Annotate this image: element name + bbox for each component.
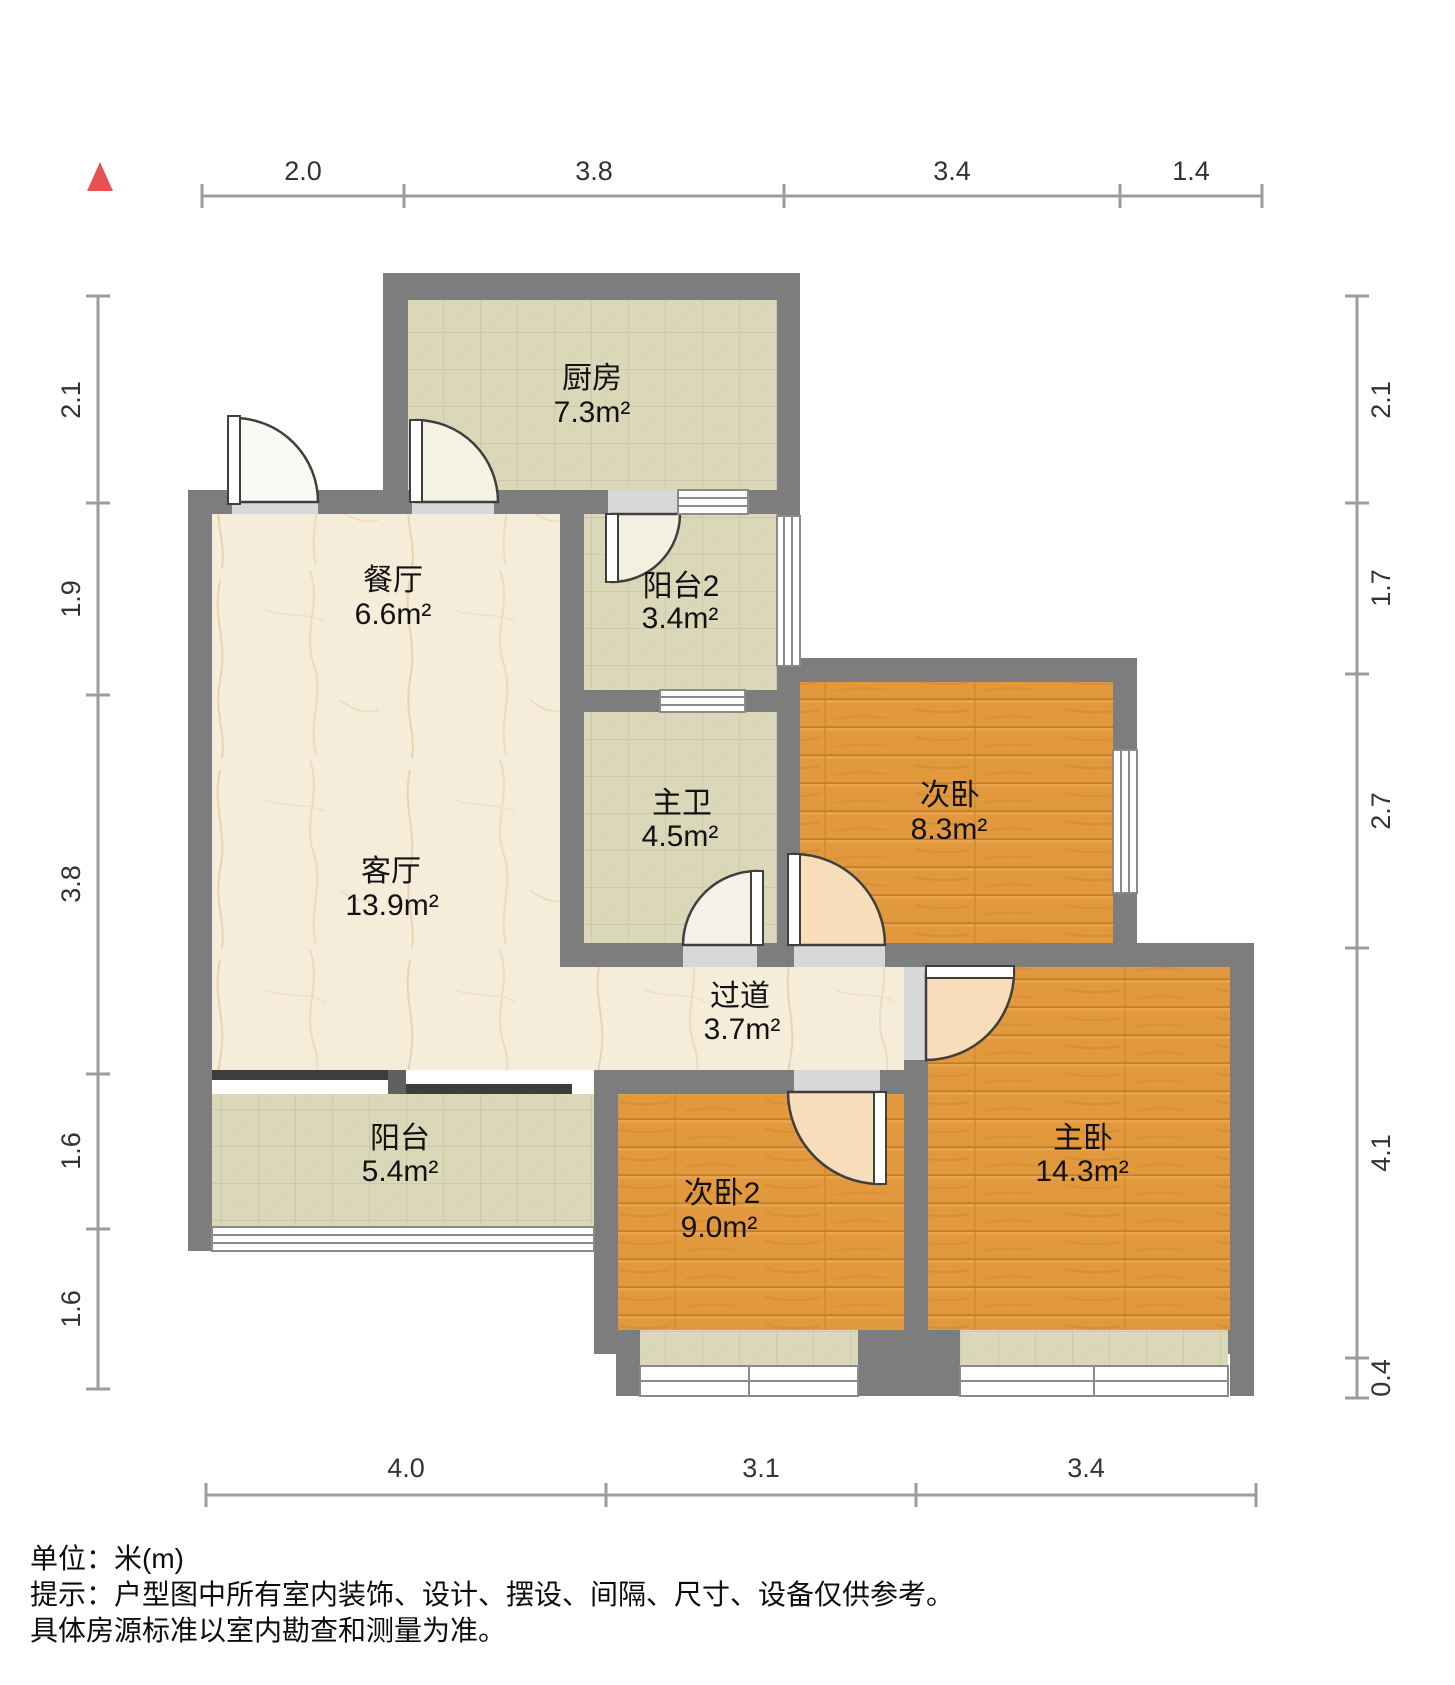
- dimension-right: 2.1 1.7 2.7 4.1 0.4: [1345, 296, 1396, 1398]
- second-bedroom-window: [1113, 750, 1137, 893]
- balcony-railing-window: [212, 1227, 594, 1251]
- balcony-area: 5.4m²: [362, 1155, 439, 1188]
- second-bedroom-area: 8.3m²: [911, 813, 988, 846]
- dim-right-1: 1.7: [1366, 569, 1396, 607]
- dim-right-4: 0.4: [1366, 1359, 1396, 1397]
- master-bedroom-label: 主卧: [1053, 1122, 1113, 1155]
- dim-top-2: 3.4: [933, 156, 971, 186]
- dim-left-4: 1.6: [56, 1290, 86, 1328]
- north-arrow-icon: [87, 162, 113, 191]
- kitchen-area: 7.3m²: [554, 396, 631, 429]
- master-bath-label: 主卫: [652, 787, 712, 820]
- balcony2-area: 3.4m²: [642, 602, 719, 635]
- bay-window-left: [640, 1366, 858, 1396]
- sliding-door: [212, 1070, 594, 1094]
- dimension-bottom: 4.0 3.1 3.4: [206, 1453, 1256, 1507]
- disclaimer-line-2: 具体房源标准以室内勘查和测量为准。: [30, 1615, 506, 1646]
- master-bedroom-area: 14.3m²: [1035, 1155, 1128, 1188]
- dim-left-0: 2.1: [56, 381, 86, 419]
- disclaimer-line-1: 提示：户型图中所有室内装饰、设计、摆设、间隔、尺寸、设备仅供参考。: [30, 1579, 954, 1610]
- dim-top-1: 3.8: [575, 156, 613, 186]
- dim-top-0: 2.0: [284, 156, 322, 186]
- dim-right-0: 2.1: [1366, 381, 1396, 419]
- dining-area: 6.6m²: [355, 598, 432, 631]
- dim-right-3: 4.1: [1366, 1134, 1396, 1172]
- dining-label: 餐厅: [363, 564, 423, 597]
- living-label: 客厅: [361, 855, 421, 888]
- dim-left-1: 1.9: [56, 580, 86, 618]
- kitchen-label: 厨房: [562, 362, 622, 395]
- dim-top-3: 1.4: [1172, 156, 1210, 186]
- dim-left-3: 1.6: [56, 1132, 86, 1170]
- dim-bottom-0: 4.0: [387, 1453, 425, 1483]
- bay-window-right-floor: [960, 1330, 1228, 1366]
- second-bedroom-2-area: 9.0m²: [681, 1211, 758, 1244]
- dim-right-2: 2.7: [1366, 792, 1396, 830]
- living-area: 13.9m²: [345, 889, 438, 922]
- unit-note: 单位：米(m): [30, 1543, 184, 1574]
- hallway-area: 3.7m²: [704, 1013, 781, 1046]
- footer-notes: 单位：米(m) 提示：户型图中所有室内装饰、设计、摆设、间隔、尺寸、设备仅供参考…: [30, 1543, 954, 1646]
- dimension-left: 2.1 1.9 3.8 1.6 1.6: [56, 296, 110, 1389]
- dim-bottom-2: 3.4: [1067, 1453, 1105, 1483]
- bay-window-left-floor: [640, 1330, 858, 1366]
- entry-door: [228, 416, 318, 504]
- hallway-label: 过道: [710, 980, 770, 1013]
- dim-left-2: 3.8: [56, 865, 86, 903]
- master-bath-area: 4.5m²: [642, 820, 719, 853]
- floorplan-page: 厨房 7.3m² 餐厅 6.6m² 阳台2 3.4m² 主卫 4.5m² 次卧 …: [0, 0, 1455, 1685]
- dim-bottom-1: 3.1: [742, 1453, 780, 1483]
- balcony2-label: 阳台2: [643, 570, 720, 603]
- kitchen-balcony2-window: [678, 490, 748, 514]
- floor-plan: 厨房 7.3m² 餐厅 6.6m² 阳台2 3.4m² 主卫 4.5m² 次卧 …: [0, 0, 1455, 1685]
- balcony2-bath-window: [660, 690, 745, 712]
- balcony2-right-window: [777, 516, 800, 666]
- second-bedroom-label: 次卧: [920, 779, 980, 812]
- dimension-top: 2.0 3.8 3.4 1.4: [202, 156, 1262, 208]
- second-bedroom-2-label: 次卧2: [684, 1177, 761, 1210]
- bay-window-right: [960, 1366, 1228, 1396]
- balcony-label: 阳台: [370, 1122, 430, 1155]
